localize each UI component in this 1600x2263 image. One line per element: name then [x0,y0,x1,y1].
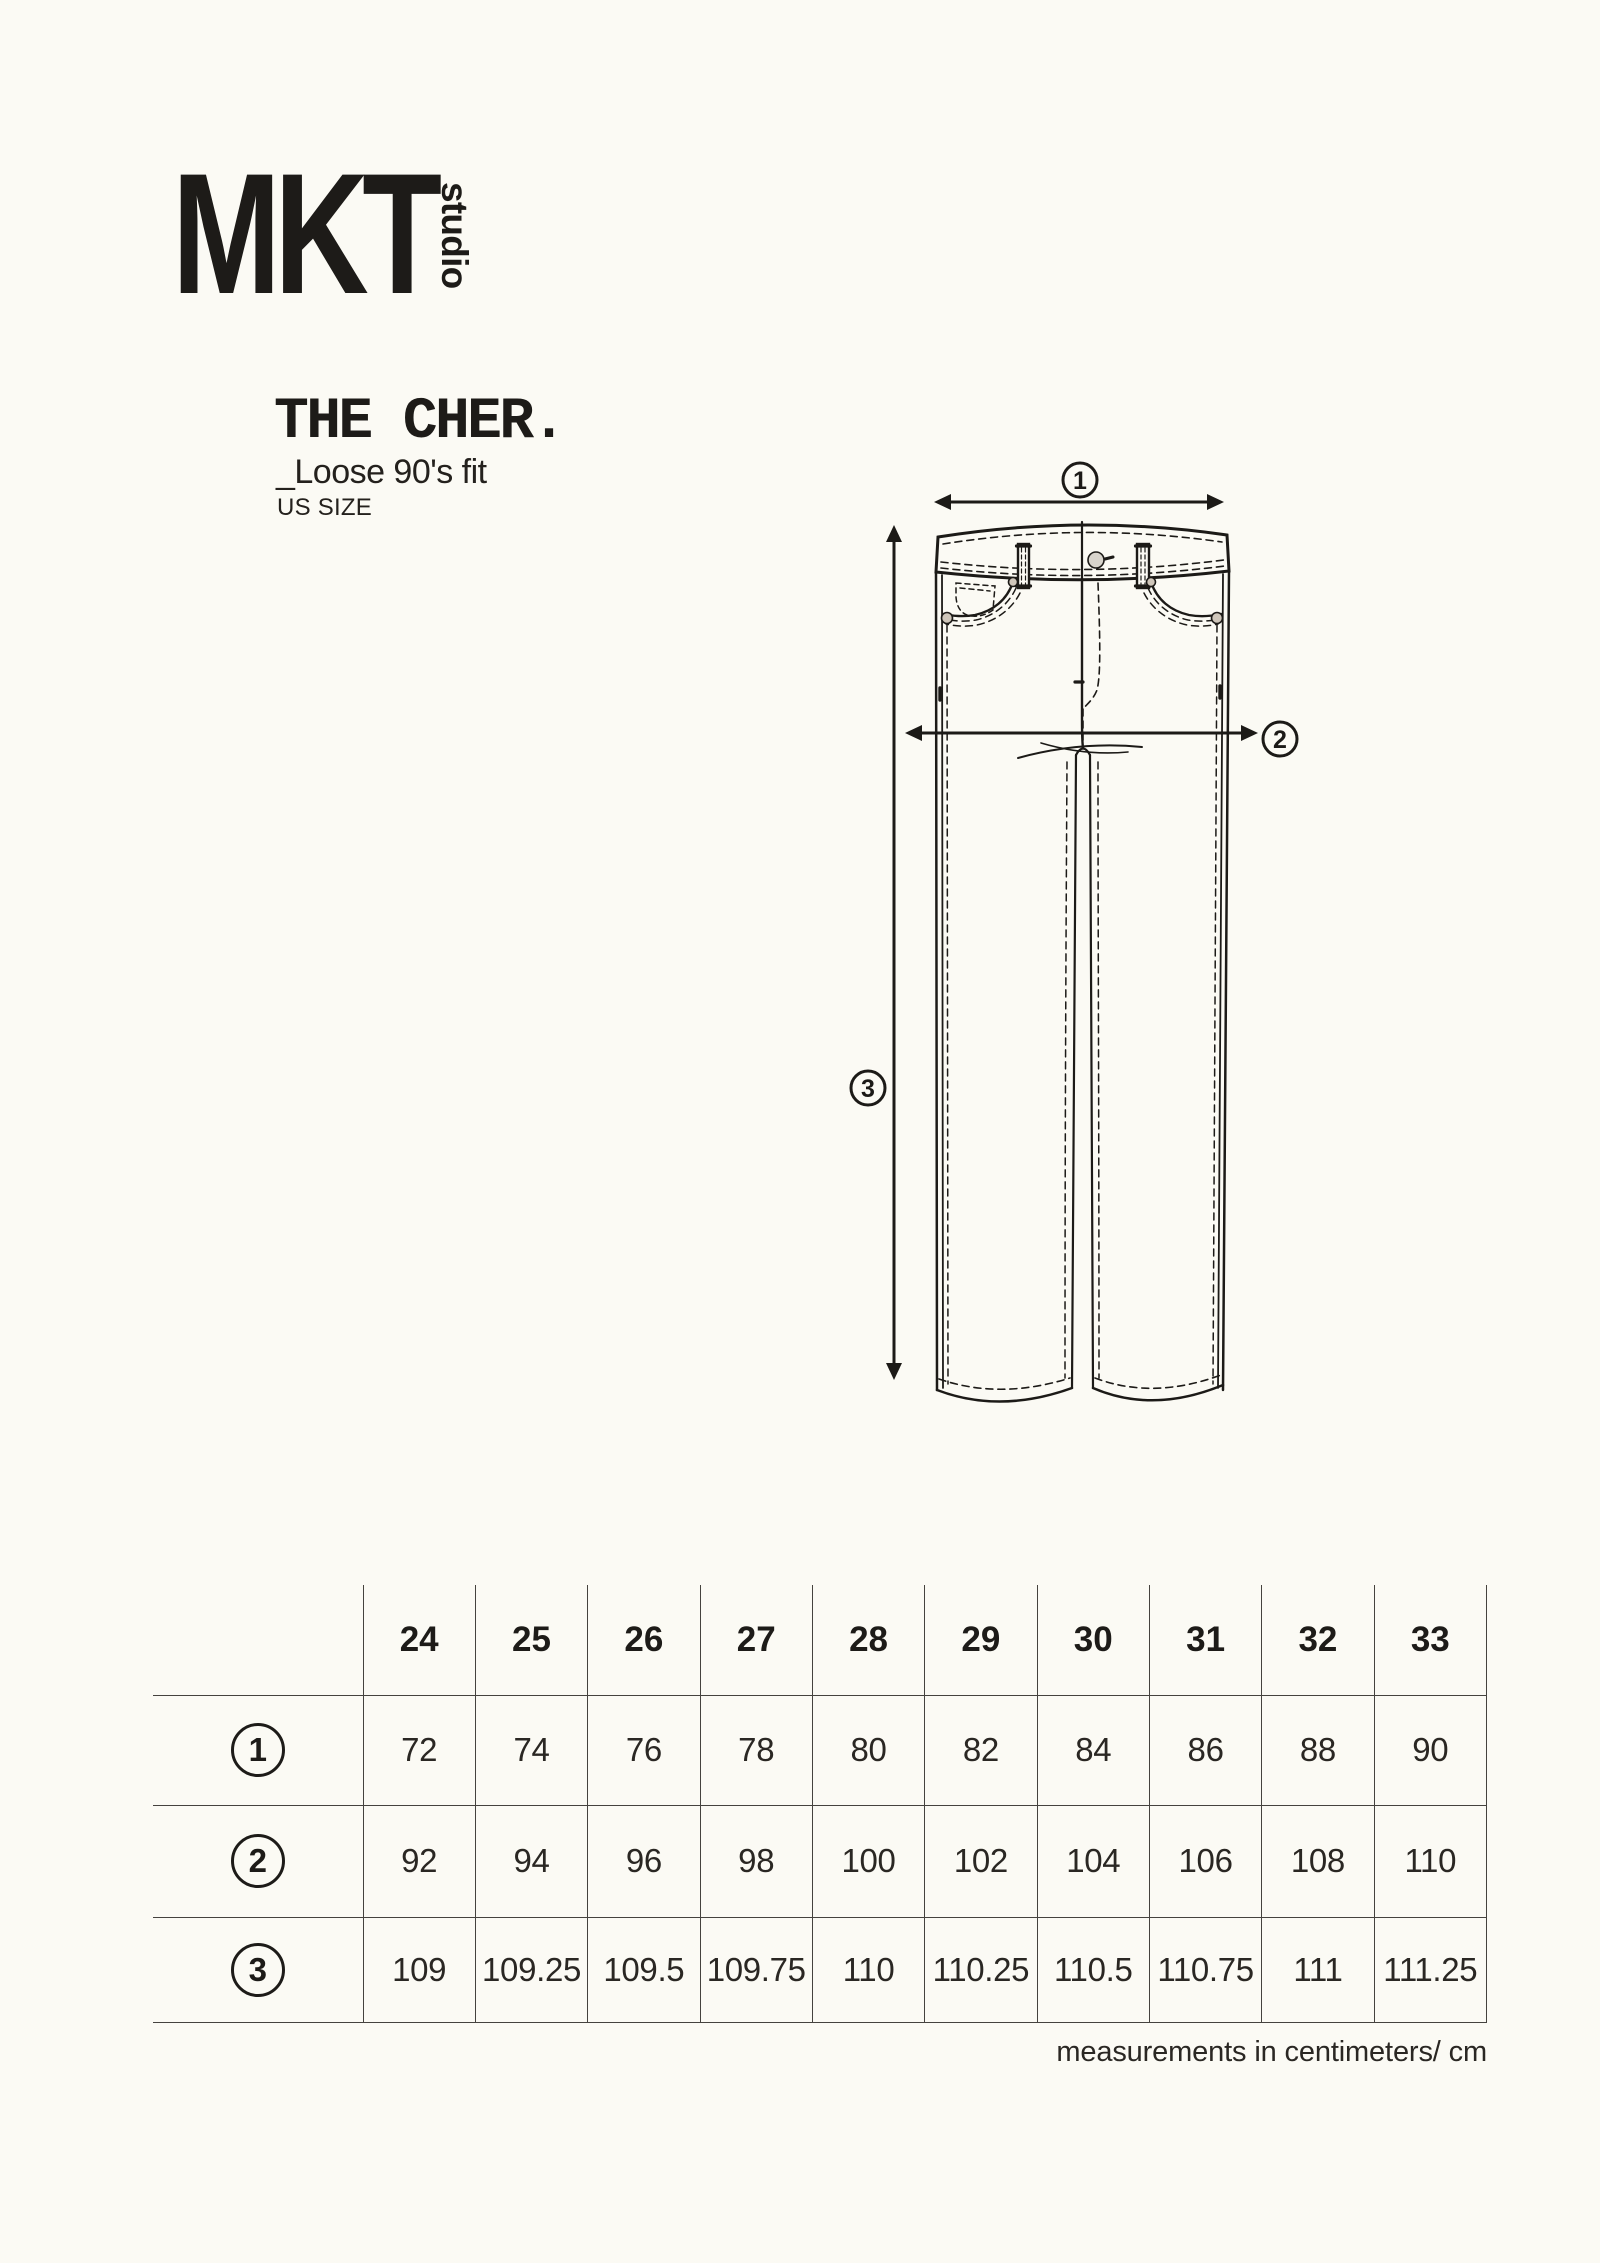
seam-bar-tack [940,686,1220,700]
svg-text:2: 2 [1273,726,1287,754]
left-leg-hem [937,1378,1072,1402]
measurement-cell: 110.25 [925,1917,1037,2022]
measurement-cell: 90 [1374,1695,1486,1805]
measurement-cell: 80 [812,1695,924,1805]
size-table: 24252627282930313233 1727476788082848688… [153,1585,1487,2023]
right-leg-inseam [1090,755,1099,1388]
measurement-cell: 110.75 [1149,1917,1261,2022]
measure-row: 3109109.25109.5109.75110110.25110.5110.7… [153,1917,1487,2022]
size-column-header: 28 [812,1585,924,1695]
measure-badge-3: 3 [851,1071,885,1105]
size-column-header: 29 [925,1585,1037,1695]
measure-label-cell: 1 [153,1695,363,1805]
measurement-cell: 102 [925,1805,1037,1917]
measurement-cell: 84 [1037,1695,1149,1805]
measure-label-circle: 1 [231,1723,285,1777]
measure-badge-2: 2 [1263,722,1297,756]
measurement-cell: 94 [475,1805,587,1917]
fly-seam [1075,580,1100,748]
product-fit-subtitle: _Loose 90's fit [276,453,487,492]
measurement-cell: 74 [475,1695,587,1805]
measurement-cell: 92 [363,1805,475,1917]
measurement-cell: 104 [1037,1805,1149,1917]
jeans-measurement-diagram: 1 2 3 [780,430,1340,1460]
measurement-cell: 109.25 [475,1917,587,2022]
product-size-standard: US SIZE [277,494,372,522]
measurement-cell: 78 [700,1695,812,1805]
measurement-cell: 110 [1374,1805,1486,1917]
measurement-cell: 109 [363,1917,475,2022]
size-column-header: 27 [700,1585,812,1695]
svg-text:3: 3 [861,1075,875,1103]
measurement-cell: 82 [925,1695,1037,1805]
right-front-pocket [1144,582,1221,626]
size-column-header: 31 [1149,1585,1261,1695]
size-guide-page: MKT studio THE CHER. _Loose 90's fit US … [0,0,1600,2263]
measurement-cell: 72 [363,1695,475,1805]
measurement-cell: 86 [1149,1695,1261,1805]
measure-row: 172747678808284868890 [153,1695,1487,1805]
measurement-cell: 100 [812,1805,924,1917]
measurement-cell: 109.75 [700,1917,812,2022]
brand-logo: MKT [172,148,436,320]
measurement-cell: 76 [588,1695,700,1805]
measure-label-cell: 2 [153,1805,363,1917]
measurement-cell: 108 [1262,1805,1374,1917]
size-column-header: 25 [475,1585,587,1695]
right-leg-hem [1093,1375,1223,1400]
measurement-cell: 109.5 [588,1917,700,2022]
measurement-cell: 96 [588,1805,700,1917]
measurement-cell: 110.5 [1037,1917,1149,2022]
measure-arrow-3 [886,525,902,1380]
size-column-header: 30 [1037,1585,1149,1695]
size-header-row: 24252627282930313233 [153,1585,1487,1695]
left-leg-inseam [1065,755,1076,1388]
jeans-illustration [936,522,1229,1402]
measurement-cell: 88 [1262,1695,1374,1805]
measurement-cell: 111.25 [1374,1917,1486,2022]
belt-loop [1017,544,1031,588]
measurement-cell: 98 [700,1805,812,1917]
units-caption: measurements in centimeters/ cm [1056,2036,1487,2069]
svg-text:1: 1 [1073,467,1087,495]
product-title: THE CHER. [274,394,564,452]
size-column-header: 24 [363,1585,475,1695]
measure-label-cell: 3 [153,1917,363,2022]
measurement-cell: 106 [1149,1805,1261,1917]
measurement-cell: 111 [1262,1917,1374,2022]
left-side-seam [936,572,948,1390]
measure-badge-1: 1 [1063,463,1097,497]
size-column-header: 33 [1374,1585,1486,1695]
table-corner-cell [153,1585,363,1695]
measurement-cell: 110 [812,1917,924,2022]
waistband [936,522,1229,580]
measure-label-circle: 3 [231,1943,285,1997]
size-column-header: 26 [588,1585,700,1695]
measure-row: 292949698100102104106108110 [153,1805,1487,1917]
brand-logo-studio: studio [431,182,473,292]
measure-label-circle: 2 [231,1834,285,1888]
size-column-header: 32 [1262,1585,1374,1695]
